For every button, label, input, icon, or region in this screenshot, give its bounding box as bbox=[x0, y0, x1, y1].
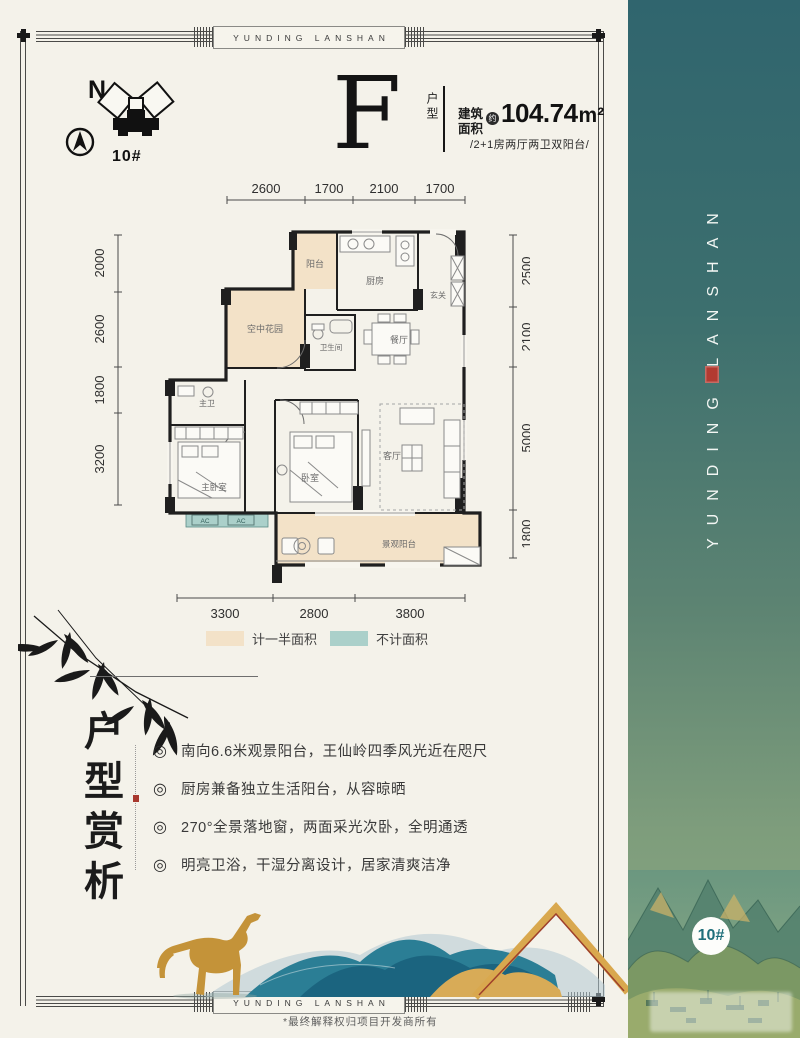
dim-top-2: 1700 bbox=[315, 181, 344, 196]
legend-label-half-area: 计一半面积 bbox=[252, 629, 317, 648]
building-badge: 10# bbox=[692, 917, 730, 955]
section-title-char-1: 户 bbox=[84, 712, 124, 752]
dim-bottom-3: 3800 bbox=[396, 606, 425, 621]
area-about-circle: 约 bbox=[486, 112, 499, 125]
dim-top-4: 1700 bbox=[426, 181, 455, 196]
dim-right-3: 5000 bbox=[519, 424, 530, 453]
seal-column-red-seal bbox=[133, 795, 139, 802]
section-title-char-2: 型 bbox=[84, 762, 124, 802]
watermark-blur bbox=[650, 992, 792, 1032]
building-number: 10# bbox=[112, 148, 142, 166]
red-seal bbox=[705, 366, 719, 383]
legend-excluded-area: 不计面积 bbox=[330, 629, 428, 648]
dim-left-3: 1800 bbox=[92, 376, 107, 405]
bullet-marker-icon: ◎ bbox=[153, 778, 181, 802]
floor-plan: 2600 1700 2100 1700 2000 2600 1800 3200 … bbox=[60, 170, 530, 630]
room-label-living: 客厅 bbox=[383, 450, 401, 461]
dim-top-3: 2100 bbox=[370, 181, 399, 196]
legend-label-excluded-area: 不计面积 bbox=[376, 629, 428, 648]
highlight-bullets: ◎ 南向6.6米观景阳台，王仙岭四季风光近在咫尺 ◎ 厨房兼备独立生活阳台，从容… bbox=[153, 740, 593, 892]
bullet-text-2: 厨房兼备独立生活阳台，从容晾晒 bbox=[181, 778, 406, 802]
room-label-sky-garden: 空中花园 bbox=[247, 323, 283, 334]
room-label-bathroom: 卫生间 bbox=[320, 342, 343, 352]
dim-right-1: 2500 bbox=[519, 257, 530, 286]
bullet-text-4: 明亮卫浴，干湿分离设计，居家清爽洁净 bbox=[181, 854, 451, 878]
area-label-line1: 建筑 bbox=[458, 107, 483, 122]
legend-swatch-teal bbox=[330, 631, 368, 646]
dim-left-1: 2000 bbox=[92, 249, 107, 278]
frame-hatch bbox=[405, 27, 425, 47]
section-title-char-3: 赏 bbox=[84, 812, 124, 852]
room-label-kitchen: 厨房 bbox=[366, 275, 384, 286]
area-value: 104.74 bbox=[501, 98, 578, 129]
room-label-master-bedroom: 主卧室 bbox=[201, 482, 227, 492]
dim-left-4: 3200 bbox=[92, 445, 107, 474]
frame-corner-cross-tl bbox=[17, 29, 30, 42]
bullet-text-3: 270°全景落地窗，两面采光次卧，全明通透 bbox=[181, 816, 468, 840]
room-label-view-balcony: 景观阳台 bbox=[382, 539, 416, 549]
building-badge-label: 10# bbox=[698, 927, 725, 945]
dim-bottom-1: 3300 bbox=[211, 606, 240, 621]
top-banner: YUNDING LANSHAN bbox=[213, 26, 405, 49]
bullet-row-4: ◎ 明亮卫浴，干湿分离设计，居家清爽洁净 bbox=[153, 854, 593, 878]
room-label-foyer: 玄关 bbox=[430, 290, 446, 300]
header-divider bbox=[443, 86, 445, 152]
frame-left-lines bbox=[20, 31, 26, 1006]
frame-corner-cross-tr bbox=[592, 29, 605, 42]
layout-description: /2+1房两厅两卫双阳台/ bbox=[470, 136, 589, 152]
section-title: 户 型 赏 析 bbox=[84, 712, 124, 902]
bullet-marker-icon: ◎ bbox=[153, 854, 181, 878]
room-label-balcony: 阳台 bbox=[306, 258, 324, 269]
bullet-row-2: ◎ 厨房兼备独立生活阳台，从容晾晒 bbox=[153, 778, 593, 802]
unit-type-label: 户型 bbox=[424, 92, 441, 122]
dim-right-2: 2100 bbox=[519, 323, 530, 352]
bullet-row-3: ◎ 270°全景落地窗，两面采光次卧，全明通透 bbox=[153, 816, 593, 840]
area-label-line2: 面积 bbox=[458, 122, 483, 137]
dim-bottom-2: 2800 bbox=[300, 606, 329, 621]
bottom-landscape bbox=[130, 893, 628, 1010]
bullet-marker-icon: ◎ bbox=[153, 740, 181, 764]
area-value-block: 104.74 m² bbox=[501, 98, 604, 129]
frame-right-lines bbox=[598, 31, 604, 1006]
bullet-marker-icon: ◎ bbox=[153, 816, 181, 840]
unit-letter: F bbox=[332, 70, 401, 158]
footer-note: *最终解释权归项目开发商所有 bbox=[283, 1014, 438, 1029]
dim-right-4: 1800 bbox=[519, 520, 530, 549]
section-title-char-4: 析 bbox=[84, 862, 124, 902]
seal-column bbox=[135, 745, 137, 870]
top-banner-text: YUNDING LANSHAN bbox=[228, 33, 390, 43]
bullet-row-1: ◎ 南向6.6米观景阳台，王仙岭四季风光近在咫尺 bbox=[153, 740, 593, 764]
building-footprint-icon bbox=[92, 76, 180, 146]
dim-top-1: 2600 bbox=[252, 181, 281, 196]
legend-swatch-beige bbox=[206, 631, 244, 646]
ac-label-1: AC bbox=[200, 518, 209, 525]
legend-half-area: 计一半面积 bbox=[206, 629, 317, 648]
area-unit: m² bbox=[579, 104, 605, 128]
room-label-master-bath: 主卫 bbox=[199, 398, 215, 408]
bullet-text-1: 南向6.6米观景阳台，王仙岭四季风光近在咫尺 bbox=[181, 740, 488, 764]
ac-label-2: AC bbox=[236, 518, 245, 525]
area-label: 建筑 面积 bbox=[458, 107, 483, 137]
dim-left-2: 2600 bbox=[92, 315, 107, 344]
frame-hatch bbox=[194, 27, 213, 47]
room-label-bedroom: 卧室 bbox=[301, 472, 319, 483]
room-label-dining: 餐厅 bbox=[390, 334, 408, 345]
section-rule bbox=[90, 676, 258, 677]
